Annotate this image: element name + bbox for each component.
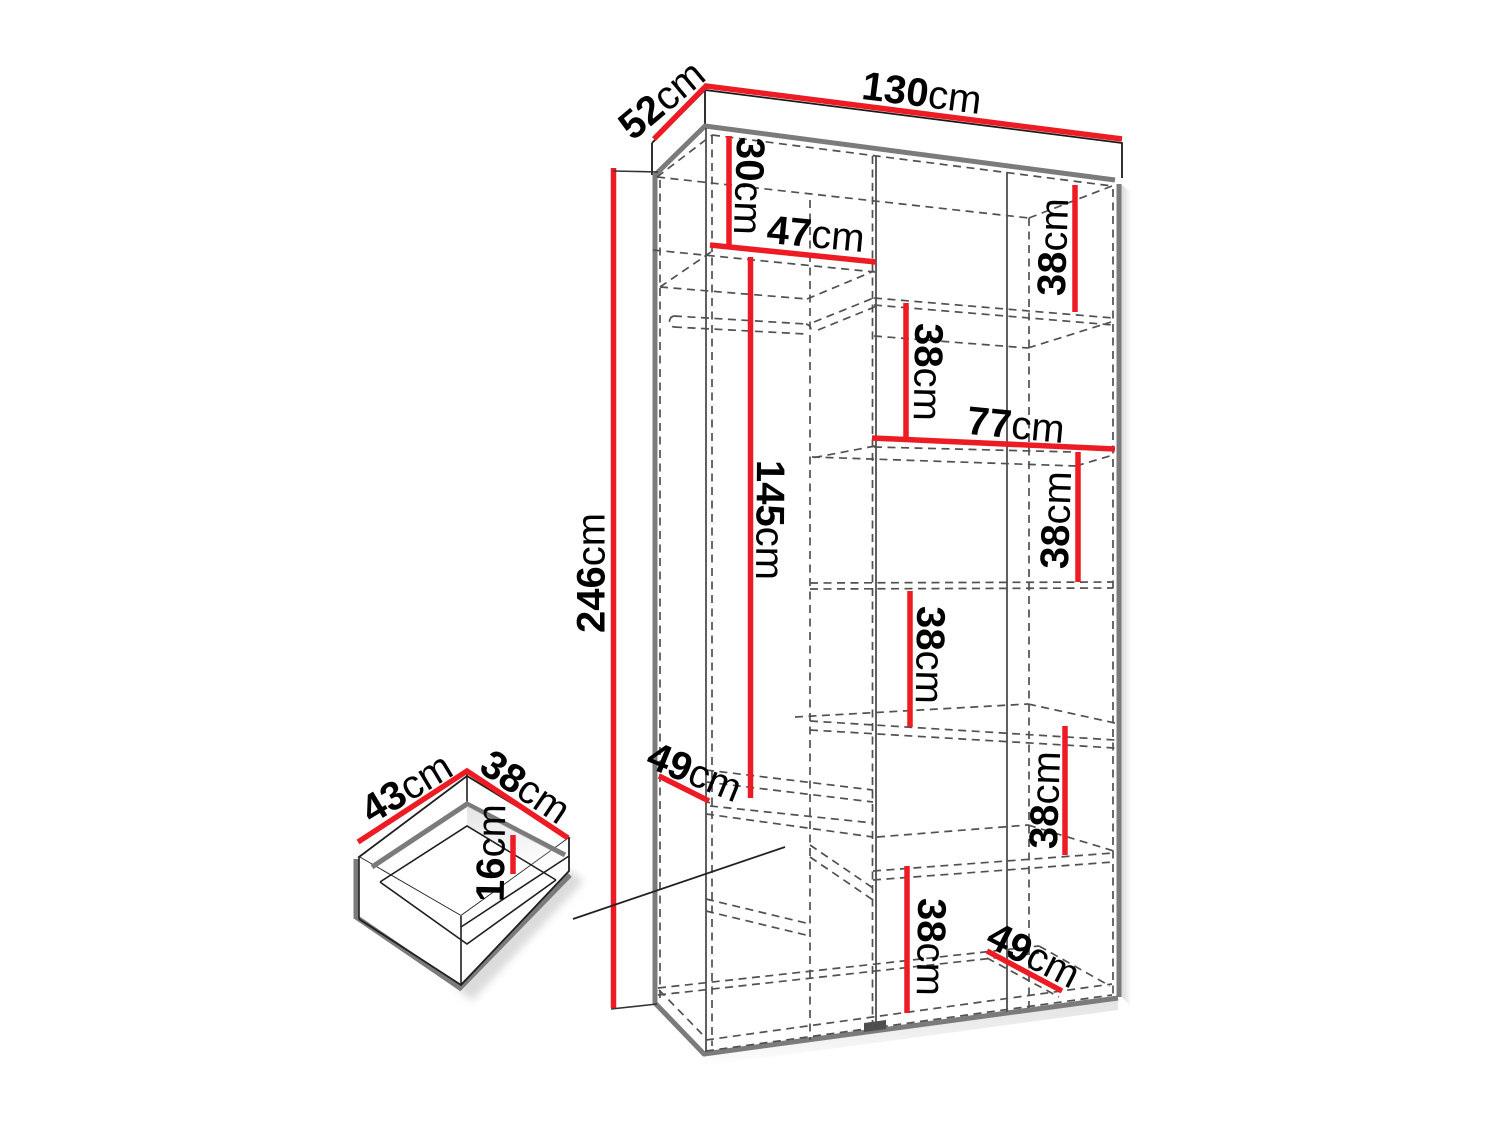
svg-text:38cm: 38cm: [908, 898, 954, 997]
svg-text:47cm: 47cm: [765, 208, 867, 261]
svg-text:77cm: 77cm: [965, 399, 1067, 452]
svg-text:246cm: 246cm: [570, 513, 614, 633]
svg-text:38cm: 38cm: [1030, 197, 1077, 296]
svg-text:38cm: 38cm: [1033, 470, 1080, 569]
svg-text:38cm: 38cm: [907, 606, 953, 705]
svg-text:30cm: 30cm: [725, 136, 772, 235]
svg-text:38cm: 38cm: [905, 323, 951, 422]
svg-text:38cm: 38cm: [1022, 750, 1069, 849]
svg-text:16cm: 16cm: [469, 804, 515, 903]
svg-text:145cm: 145cm: [747, 460, 792, 580]
